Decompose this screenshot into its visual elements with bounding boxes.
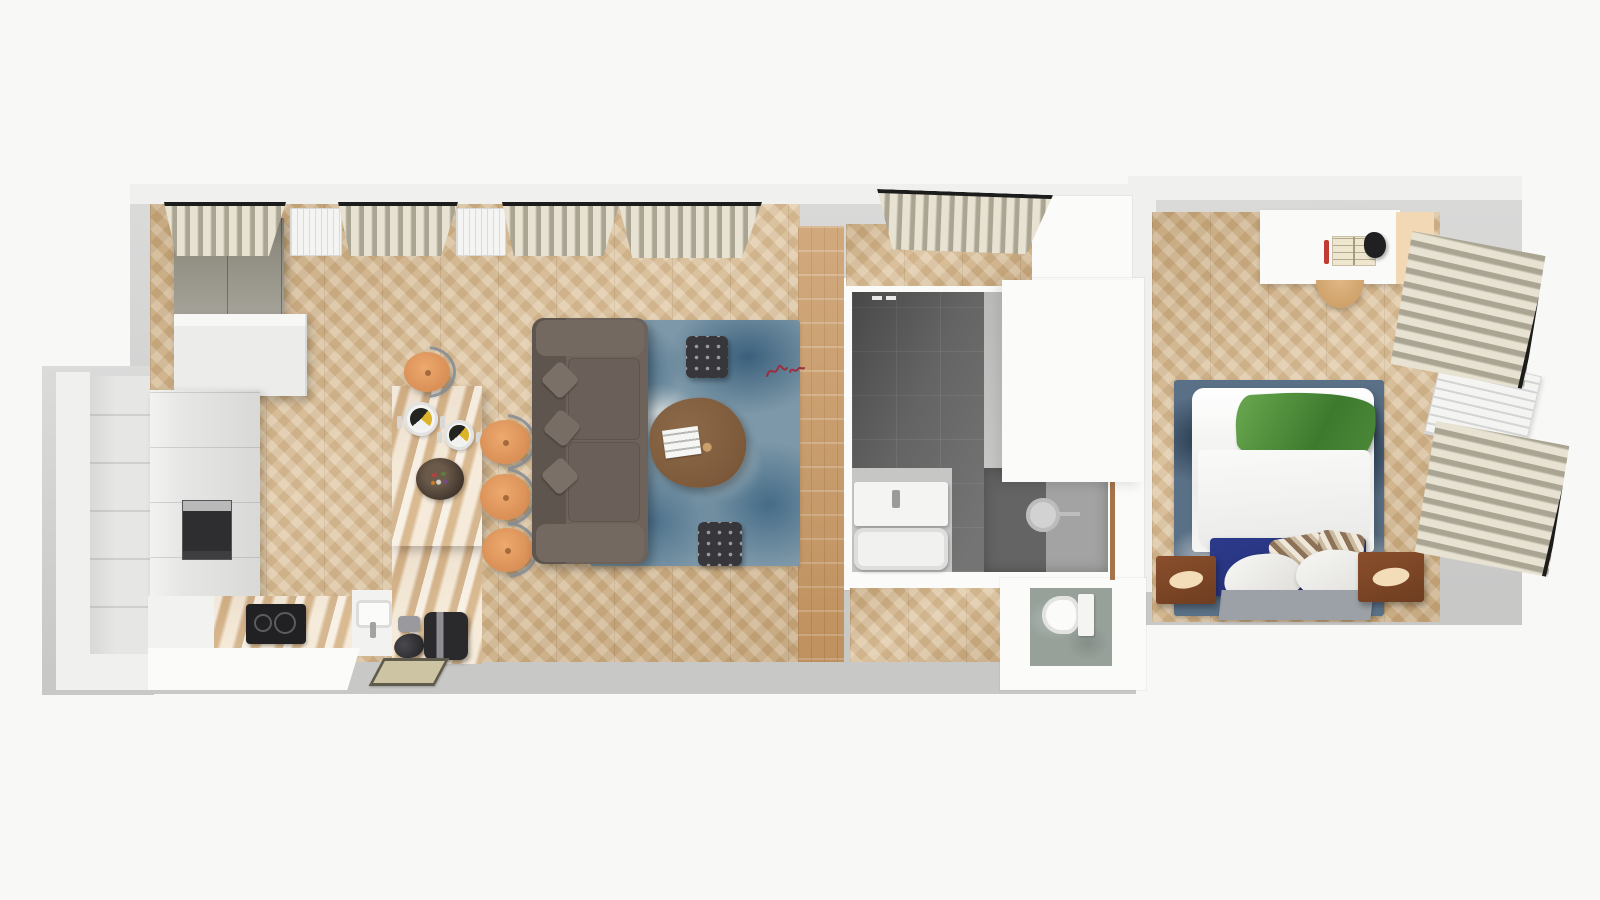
sofa-armrest — [536, 320, 644, 356]
dining-stool — [404, 352, 450, 392]
towel-hook — [886, 296, 896, 300]
table-decor-knob — [702, 442, 712, 452]
vanity-faucet — [892, 490, 900, 508]
white-wall-cabinet — [174, 314, 307, 396]
plate-food — [449, 425, 468, 444]
entry-closet-panels — [90, 376, 154, 654]
sofa-seat-cushion — [568, 442, 640, 522]
place-setting-plate — [444, 420, 474, 450]
bathtub — [854, 528, 948, 570]
desk-lamp — [1364, 232, 1386, 258]
floor-plan-canvas — [0, 0, 1600, 900]
nightstand — [1156, 556, 1216, 604]
rain-shower-head — [1026, 498, 1060, 532]
window-curtain — [875, 189, 1053, 255]
coffee-machine — [424, 612, 468, 660]
window-radiator — [290, 208, 342, 256]
window-radiator — [456, 208, 506, 256]
bathroom-door — [1110, 480, 1115, 580]
vanity-counter — [854, 482, 948, 526]
window-curtain — [502, 202, 620, 256]
toilet-tank — [1078, 594, 1094, 636]
hallway-floor — [798, 226, 844, 662]
sink-faucet — [370, 622, 376, 638]
dining-stool — [480, 420, 530, 464]
dining-stool — [480, 474, 530, 520]
top-wall-band-bedroom — [1128, 176, 1522, 200]
plate-food — [410, 408, 432, 430]
dining-stool — [482, 528, 532, 572]
window-curtain — [618, 202, 762, 258]
sofa — [532, 318, 648, 564]
bedside-mat — [1218, 590, 1373, 620]
entry-wall-left — [56, 372, 90, 690]
induction-hob — [246, 604, 306, 644]
tufted-ottoman — [686, 336, 728, 378]
place-setting-plate — [404, 402, 438, 436]
storage-jar — [398, 616, 420, 632]
wood-floor-below-bathroom — [850, 588, 1000, 662]
nightstand — [1358, 552, 1424, 602]
counter-corner — [148, 596, 222, 648]
entry-wall-bottom — [56, 652, 158, 690]
curtain-rod — [1540, 444, 1576, 585]
curtain-rod — [162, 202, 289, 206]
window-curtain — [338, 202, 458, 256]
red-pen — [1324, 240, 1329, 264]
kitchen-counter-front — [148, 648, 360, 690]
magazine — [662, 426, 702, 459]
curtain-rod — [500, 202, 623, 206]
sofa-armrest — [536, 524, 644, 562]
curtain-rod — [615, 202, 765, 206]
built-in-oven — [182, 500, 232, 560]
toilet-bowl — [1042, 596, 1080, 634]
window-curtain — [164, 202, 286, 256]
tufted-ottoman — [698, 522, 742, 566]
curtain-rod — [336, 202, 461, 206]
towel-hook — [872, 296, 882, 300]
hall-closet-block — [1002, 280, 1144, 482]
fruit-bowl — [416, 458, 464, 500]
red-scribble-marking — [764, 358, 810, 384]
